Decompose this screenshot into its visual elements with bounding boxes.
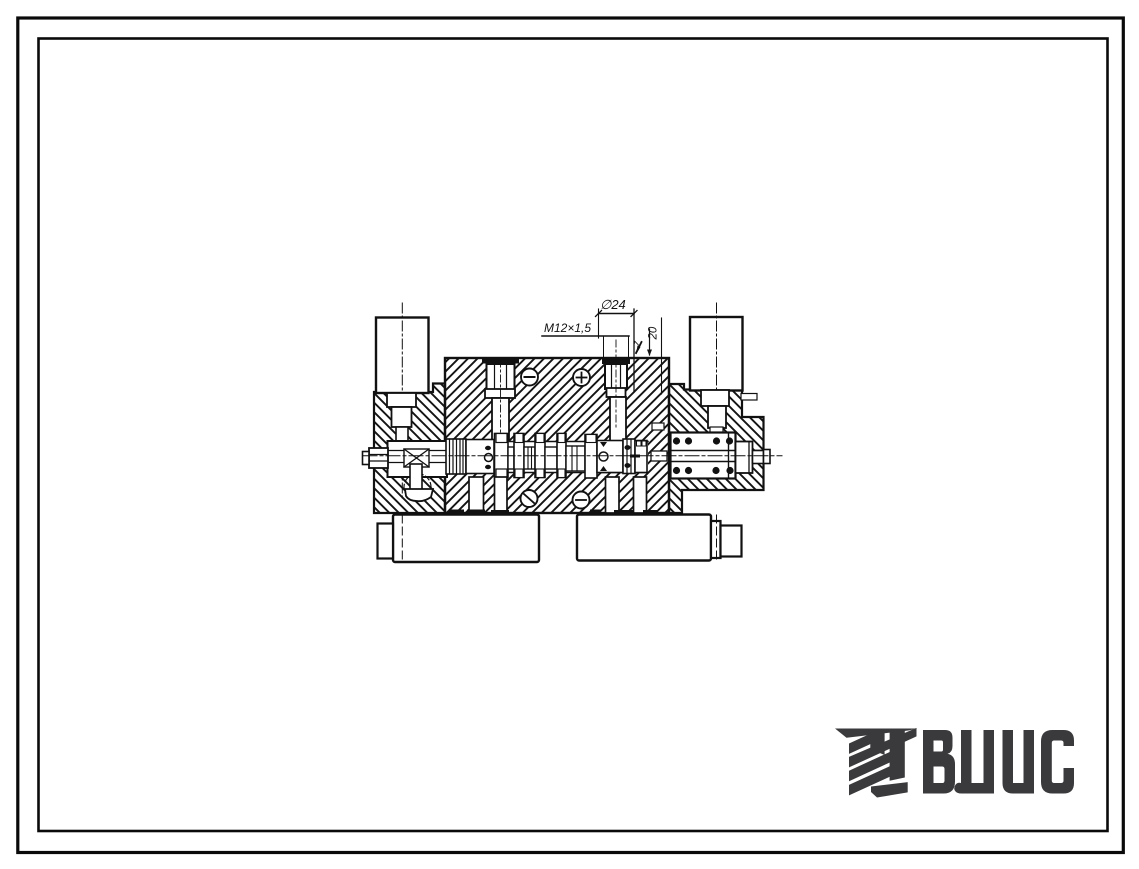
- svg-text:20: 20: [648, 326, 660, 340]
- svg-text:∅24: ∅24: [600, 297, 626, 312]
- svg-text:M12×1,5: M12×1,5: [544, 321, 591, 335]
